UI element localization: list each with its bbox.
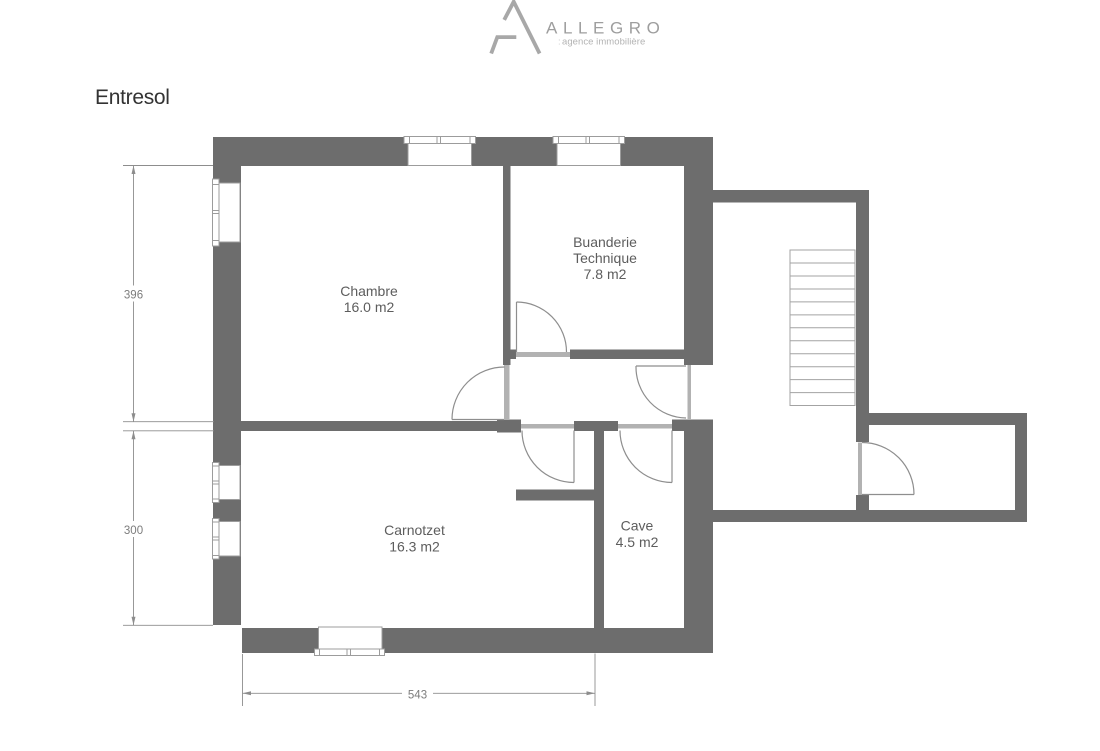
svg-text:7.8 m2: 7.8 m2	[584, 266, 627, 282]
svg-text:Cave: Cave	[621, 518, 654, 534]
svg-text:543: 543	[408, 690, 427, 702]
svg-text:Chambre: Chambre	[340, 283, 398, 299]
svg-text:Entresol: Entresol	[95, 86, 170, 109]
svg-text::: :	[558, 37, 561, 48]
svg-text:Technique: Technique	[573, 250, 637, 266]
svg-text:ALLEGRO: ALLEGRO	[546, 19, 666, 38]
svg-text:agence immobilière: agence immobilière	[562, 37, 645, 48]
svg-text:300: 300	[124, 525, 143, 537]
svg-text:16.0 m2: 16.0 m2	[344, 299, 395, 315]
svg-text:Carnotzet: Carnotzet	[384, 522, 445, 538]
svg-text:4.5 m2: 4.5 m2	[616, 534, 659, 550]
svg-text:16.3 m2: 16.3 m2	[389, 539, 440, 555]
svg-text:Buanderie: Buanderie	[573, 234, 637, 250]
svg-text:396: 396	[124, 290, 143, 302]
